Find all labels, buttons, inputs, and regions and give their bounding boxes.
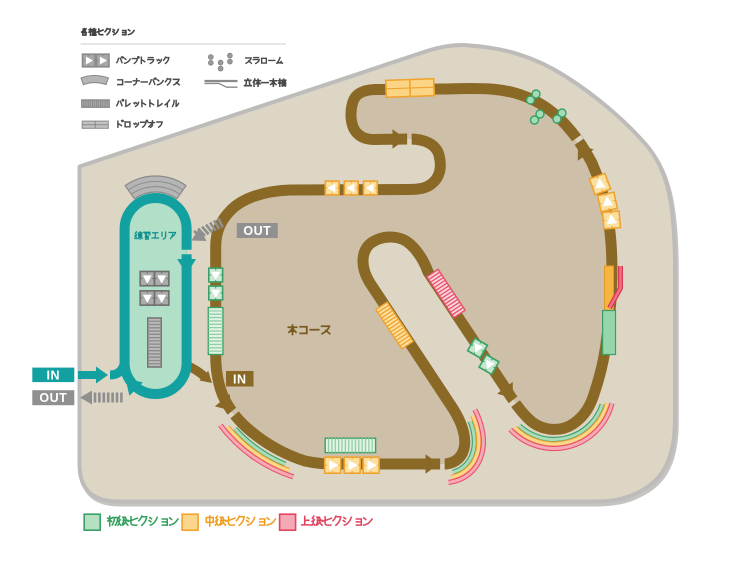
svg-text:IN: IN (47, 368, 61, 382)
svg-text:IN: IN (233, 372, 247, 386)
svg-text:OUT: OUT (243, 224, 271, 238)
svg-text:OUT: OUT (39, 391, 67, 405)
